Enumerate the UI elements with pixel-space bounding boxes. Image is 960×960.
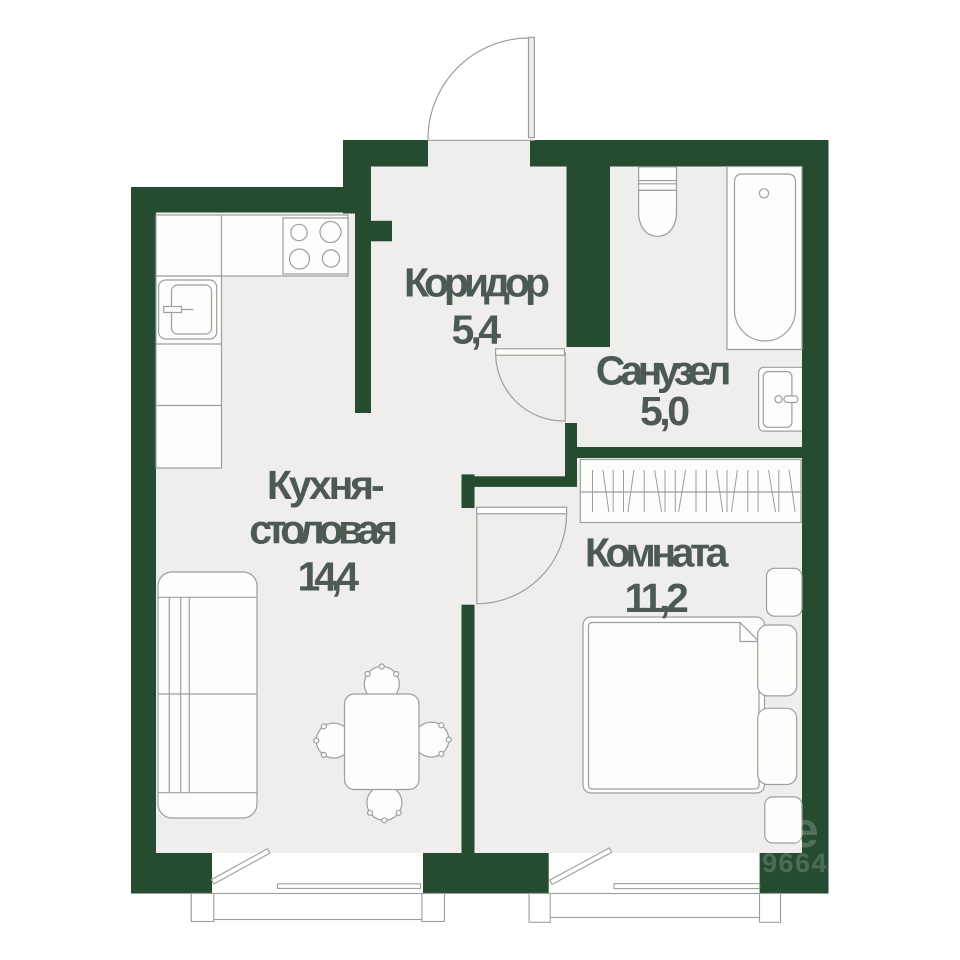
svg-text:11,2: 11,2 [625,575,689,621]
svg-text:Комната: Комната [585,529,730,575]
svg-text:Коридор: Коридор [404,260,550,306]
svg-text:Санузел: Санузел [596,348,732,394]
svg-text:9664: 9664 [762,848,828,878]
svg-text:14,4: 14,4 [298,553,360,599]
svg-text:5,4: 5,4 [452,307,502,353]
svg-text:5,0: 5,0 [640,388,690,434]
svg-text:столовая: столовая [249,507,398,553]
svg-text:Кухня-: Кухня- [267,462,385,508]
